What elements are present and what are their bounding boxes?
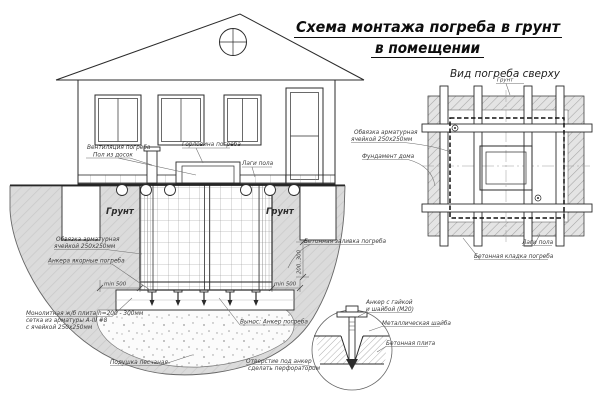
label-detail-washer: Металлическая шайба	[382, 321, 451, 327]
cellar-box	[140, 184, 272, 290]
label-sand: Подушка песчаная	[110, 360, 168, 366]
dimension-text: min 500	[104, 282, 127, 288]
drawing-title-block: Схема монтажа погреба в грунт в помещени…	[294, 18, 562, 58]
label-neck: Горловина погреба	[182, 142, 241, 148]
label-detail-hole-1: Отверстие под анкер	[246, 359, 312, 365]
label-detail-anchor-1: Анкер с гайкой	[365, 300, 413, 306]
leader-plan-foundation	[362, 160, 435, 187]
label-detail-hole-2: сделать перфоратором	[248, 366, 321, 372]
label-binding-1: Обвязка арматурная	[56, 237, 120, 243]
label-plan-joists: Лаги пола	[521, 240, 554, 246]
label-slab-2: сетка из арматуры А-III #8	[26, 318, 108, 324]
label-plan-masonry: Бетонная кладка погреба	[474, 254, 554, 260]
leader-detail-washer	[369, 327, 440, 332]
label-anchors: Анкера якорные погреба	[47, 259, 125, 265]
dimension-text: min 500	[274, 282, 297, 288]
leader-plan-soil	[496, 84, 524, 96]
label-slab-1: Монолитная ж/б плита h=200 - 300мм	[26, 311, 144, 317]
label-pour: Бетонная заливка погреба	[304, 239, 387, 245]
label-detail-anchor-2: и шайбой (М20)	[366, 307, 414, 313]
label-plan-binding-2: ячейкой 250х250мм	[351, 137, 413, 143]
section-view: min 500 min 500 200..300 Вентиляция погр…	[10, 14, 387, 375]
label-vent-1: Вентиляция погреба	[87, 145, 151, 151]
label-soil-right: Грунт	[266, 207, 295, 217]
label-detail-plate: Бетонная плита	[386, 341, 436, 347]
cellar-installation-drawing: min 500 min 500 200..300 Вентиляция погр…	[0, 0, 600, 400]
label-soil-left: Грунт	[106, 207, 135, 217]
label-plan-soil: Грунт	[497, 78, 514, 84]
round-window	[220, 29, 247, 56]
label-joists: Лаги пола	[241, 161, 274, 167]
plan-anchor-marker	[535, 195, 541, 201]
dimension-text: 200..300	[297, 249, 303, 274]
label-plan-binding-1: Обвязка арматурная	[354, 130, 418, 136]
plan-rebar-binding	[450, 118, 564, 218]
label-slab-3: с ячейкой 250х250мм	[26, 325, 93, 331]
house	[56, 14, 364, 184]
drawing-title-line1: Схема монтажа погреба в грунт	[296, 18, 561, 36]
label-vent-2: Пол из досок	[93, 153, 133, 159]
label-callout: Вынос: Анкер погреба	[240, 320, 308, 326]
label-plan-foundation: Фундамент дома	[362, 154, 415, 160]
drawing-title-line2: в помещении	[375, 39, 480, 57]
drawing-sheet: min 500 min 500 200..300 Вентиляция погр…	[0, 0, 600, 400]
plan-view: Вид погреба сверху Грунт Обвязка арматур…	[351, 68, 592, 260]
label-binding-2: ячейкой 250х250мм	[54, 244, 116, 250]
